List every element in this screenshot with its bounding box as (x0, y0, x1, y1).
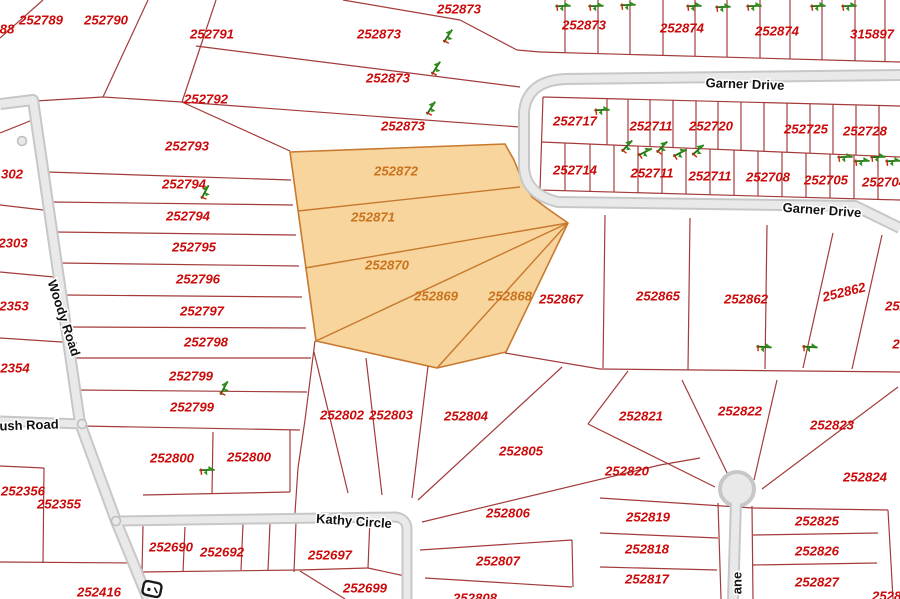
parcel-number: 252793 (164, 139, 210, 154)
parcel-number: 252800 (226, 450, 272, 465)
parcel-number: 252824 (842, 470, 888, 485)
parcel-number: 252820 (604, 464, 650, 479)
parcel-number: 252717 (552, 114, 598, 129)
parcel-number: 252821 (618, 409, 663, 424)
parcel-number: 252697 (307, 548, 353, 563)
parcel-number: 252803 (368, 408, 414, 423)
parcel-number: 252874 (754, 24, 800, 39)
cul-de-sac (720, 472, 754, 506)
parcel-number: 252804 (443, 409, 489, 424)
parcel-number: 252416 (76, 585, 122, 599)
road-junction-dot (112, 517, 121, 526)
parcel-number: 252711 (628, 119, 672, 134)
parcel-number: 252799 (168, 369, 214, 384)
parcel-number: 302 (1, 167, 24, 182)
road-junction-dot (18, 137, 27, 146)
parcel-number: 252827 (794, 575, 840, 590)
parcel-number: 252790 (83, 13, 129, 28)
selected-parcel-number: 252870 (364, 258, 410, 273)
selected-parcel-number: 252872 (373, 164, 419, 179)
parcel-number: 252873 (356, 27, 402, 42)
parcel-number: 252808 (452, 591, 498, 599)
parcel-number: 252797 (179, 304, 225, 319)
road-name-label: Garner Drive (705, 75, 784, 93)
road-shield-icon (142, 580, 163, 597)
selected-parcel-number: 252871 (350, 210, 395, 225)
parcel-number: 252 (884, 299, 900, 314)
road-name-label: ane (730, 572, 745, 594)
parcel-number: 2 (891, 337, 900, 352)
parcel-number: 88 (0, 22, 15, 37)
parcel-map[interactable]: 8825278925279025279125279225279325279425… (0, 0, 900, 599)
parcel-number: 252796 (175, 272, 221, 287)
parcel-number: 252699 (342, 581, 388, 596)
parcel-number: 252822 (717, 404, 763, 419)
parcel-number: 252799 (169, 400, 215, 415)
parcel-number: 252802 (319, 408, 365, 423)
parcel-number: 252720 (688, 119, 734, 134)
parcel-number: 252823 (809, 418, 855, 433)
parcel-number: 252798 (183, 335, 229, 350)
parcel-number: 252708 (745, 170, 791, 185)
parcel-number: 252873 (380, 119, 426, 134)
parcel-number: 252826 (794, 544, 840, 559)
parcel-number: 252873 (561, 18, 607, 33)
parcel-number: 252805 (498, 444, 544, 459)
parcel-number: 252867 (538, 292, 584, 307)
parcel-map-canvas[interactable]: 8825278925279025279125279225279325279425… (0, 0, 900, 599)
parcel-number: 252862 (723, 292, 769, 307)
parcel-number: 252725 (783, 122, 829, 137)
parcel-number: 252873 (436, 2, 482, 17)
parcel-number: 252355 (36, 497, 82, 512)
parcel-number: 252791 (189, 27, 234, 42)
parcel-number: 252711 (629, 166, 673, 181)
parcel-number: 252711 (687, 169, 731, 184)
parcel-number: 252728 (842, 124, 888, 139)
parcel-number: 252865 (635, 289, 681, 304)
parcel-number: 252792 (183, 92, 229, 107)
parcel-number: 252690 (148, 540, 194, 555)
parcel-number: 2303 (0, 236, 28, 251)
parcel-number: 252825 (794, 514, 840, 529)
parcel-number: 252800 (149, 451, 195, 466)
parcel-number: 252807 (475, 554, 521, 569)
parcel-number: 252794 (161, 177, 207, 192)
parcel-number: 315897 (850, 27, 895, 42)
selected-parcel-number: 252869 (413, 289, 459, 304)
parcel-number: 252705 (803, 173, 849, 188)
road-junction-dot (78, 420, 87, 429)
parcel-number: 2354 (0, 361, 30, 376)
parcel-number: 252714 (552, 163, 598, 178)
parcel-number: 252795 (171, 240, 217, 255)
parcel-number: 252873 (365, 71, 411, 86)
parcel-number: 252789 (18, 13, 64, 28)
parcel-number: 2353 (0, 299, 29, 314)
parcel-number: 252819 (625, 510, 671, 525)
parcel-number: 252692 (199, 545, 245, 560)
parcel-number: 252806 (485, 506, 531, 521)
parcel-number: 252874 (659, 21, 705, 36)
parcel-number: 252794 (165, 209, 211, 224)
selected-parcel-number: 252868 (487, 289, 533, 304)
parcel-number: 252818 (624, 542, 670, 557)
parcel-number: 252704 (861, 175, 900, 190)
parcel-number: 252828 (871, 589, 900, 599)
parcel-number: 252817 (624, 572, 670, 587)
road-name-label: ush Road (0, 416, 59, 433)
